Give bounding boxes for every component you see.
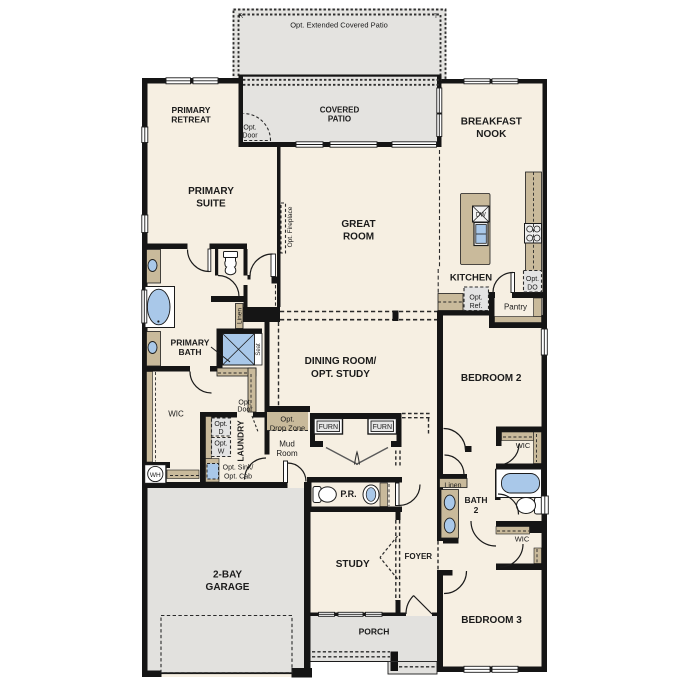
svg-text:OPT. STUDY: OPT. STUDY <box>311 369 370 380</box>
svg-text:KITCHEN: KITCHEN <box>450 273 492 284</box>
svg-text:PATIO: PATIO <box>328 115 351 124</box>
svg-text:FURN: FURN <box>319 424 338 431</box>
svg-text:W: W <box>218 449 225 456</box>
svg-text:2: 2 <box>474 505 479 515</box>
svg-text:Opt. Cab: Opt. Cab <box>224 474 252 481</box>
svg-text:Opt.: Opt. <box>238 400 251 407</box>
svg-text:WIC: WIC <box>516 441 531 450</box>
svg-text:LAUNDRY: LAUNDRY <box>236 420 246 462</box>
svg-text:RETREAT: RETREAT <box>171 115 211 125</box>
svg-text:Pantry: Pantry <box>504 303 527 312</box>
svg-text:Room: Room <box>276 449 298 458</box>
svg-text:2-BAY: 2-BAY <box>213 570 242 581</box>
svg-text:Door: Door <box>242 133 258 140</box>
svg-text:PRIMARY: PRIMARY <box>188 186 234 197</box>
svg-text:Opt.: Opt. <box>526 276 539 283</box>
svg-text:T: T <box>434 14 438 20</box>
svg-text:DINING ROOM/: DINING ROOM/ <box>305 356 377 367</box>
svg-text:BREAKFAST: BREAKFAST <box>461 117 522 128</box>
svg-text:WH: WH <box>150 472 161 479</box>
svg-text:Seat: Seat <box>256 343 262 356</box>
svg-text:GREAT: GREAT <box>341 219 375 230</box>
svg-text:WIC: WIC <box>515 535 530 544</box>
svg-text:DO: DO <box>527 285 538 292</box>
svg-text:P.R.: P.R. <box>340 489 356 499</box>
svg-text:Drop Zone: Drop Zone <box>270 424 305 433</box>
svg-text:Opt. Sink/: Opt. Sink/ <box>223 465 254 472</box>
svg-text:Opt. Extended Covered Patio: Opt. Extended Covered Patio <box>290 21 388 30</box>
svg-text:BEDROOM 2: BEDROOM 2 <box>461 373 522 384</box>
svg-text:GARAGE: GARAGE <box>206 582 250 593</box>
svg-text:SUITE: SUITE <box>196 199 226 210</box>
svg-text:FOYER: FOYER <box>405 552 433 561</box>
svg-text:FURN: FURN <box>373 424 392 431</box>
svg-text:Opt.: Opt. <box>243 125 256 132</box>
svg-text:PRIMARY: PRIMARY <box>171 338 210 348</box>
svg-text:BATH: BATH <box>179 347 202 357</box>
svg-text:Opt.: Opt. <box>214 421 227 428</box>
svg-text:PORCH: PORCH <box>359 627 390 637</box>
svg-text:Door: Door <box>237 407 253 414</box>
svg-text:Linen: Linen <box>444 483 461 490</box>
svg-text:COVERED: COVERED <box>320 106 360 115</box>
svg-text:ROOM: ROOM <box>343 232 374 243</box>
svg-text:WIC: WIC <box>168 410 184 419</box>
svg-text:BEDROOM 3: BEDROOM 3 <box>461 615 522 626</box>
svg-text:Opt.: Opt. <box>214 441 227 448</box>
svg-text:Opt.: Opt. <box>469 295 482 302</box>
svg-text:DW: DW <box>476 213 486 219</box>
svg-text:PRIMARY: PRIMARY <box>172 105 211 115</box>
svg-text:D: D <box>218 429 223 436</box>
svg-text:Opt. Fireplace: Opt. Fireplace <box>287 206 294 247</box>
svg-text:Ref.: Ref. <box>470 303 483 310</box>
svg-text:BATH: BATH <box>465 495 488 505</box>
svg-text:NOOK: NOOK <box>476 129 507 140</box>
svg-text:Opt.: Opt. <box>280 415 294 424</box>
svg-text:Linen: Linen <box>237 308 244 324</box>
svg-text:Mud: Mud <box>279 440 295 449</box>
svg-text:R: R <box>239 14 244 20</box>
svg-text:STUDY: STUDY <box>336 559 370 570</box>
